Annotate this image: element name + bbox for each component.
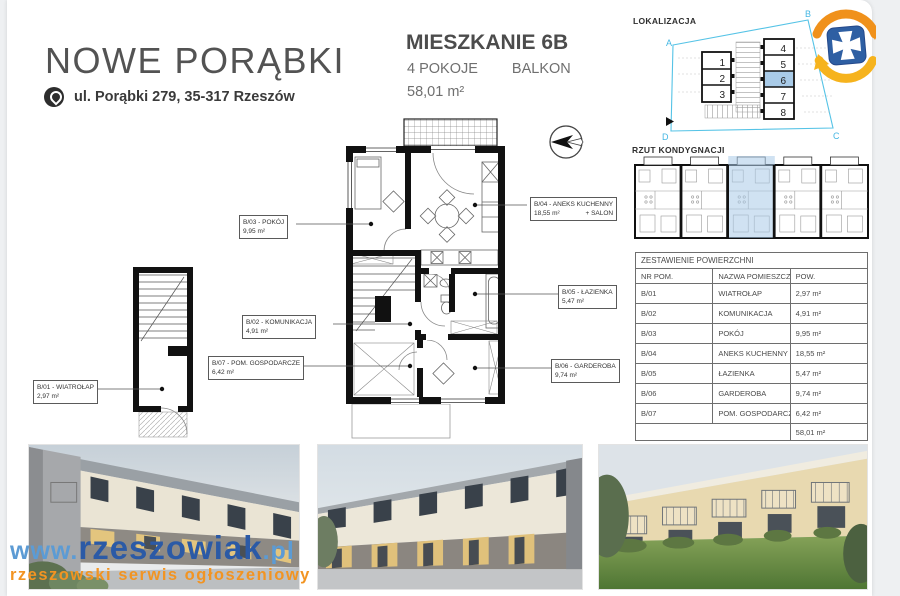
site-unit-6-highlight (765, 72, 793, 87)
label-b06: B/06 - GARDEROBA 9,74 m² (551, 359, 620, 383)
label-b04: B/04 - ANEKS KUCHENNY 18,55 m²+ SALON (530, 197, 617, 221)
ground-floor-plan (133, 267, 193, 437)
site-corner-b: B (805, 9, 811, 19)
col-area: POW. (790, 269, 867, 284)
site-unit-2: 2 (719, 74, 725, 85)
site-corner-a: A (666, 38, 672, 48)
rzeszow-crest-logo (812, 5, 876, 89)
watermark-url: www.rzeszowiak.pl (10, 531, 311, 564)
site-corner-c: C (833, 131, 840, 141)
area-table: ZESTAWIENIE POWIERZCHNI NR POM. NAZWA PO… (635, 252, 868, 441)
label-b03: B/03 - POKÓJ 9,95 m² (239, 215, 288, 239)
table-row: B/07POM. GOSPODARCZE6,42 m² (636, 404, 868, 424)
watermark: www.rzeszowiak.pl rzeszowski serwis ogło… (10, 531, 311, 584)
unit-title: MIESZKANIE 6B (406, 31, 568, 55)
site-unit-7: 7 (780, 92, 786, 103)
unit-subtitle: 4 POKOJE BALKON (407, 61, 571, 77)
entry-stoop (352, 404, 450, 438)
parking-strip-center (736, 42, 760, 112)
table-row: B/02KOMUNIKACJA4,91 m² (636, 304, 868, 324)
project-title: NOWE PORĄBKI (45, 40, 345, 82)
site-unit-4: 4 (780, 44, 786, 55)
label-b01: B/01 - WIATROŁAP 2,97 m² (33, 380, 98, 404)
storey-plan-strip (630, 150, 875, 245)
label-b07: B/07 - POM. GOSPODARCZE 6,42 m² (208, 356, 304, 380)
site-unit-1: 1 (719, 58, 725, 69)
upper-floor-plan (346, 119, 505, 438)
site-unit-5: 5 (780, 60, 786, 71)
label-b02: B/02 - KOMUNIKACJA 4,91 m² (242, 315, 316, 339)
label-b05: B/05 - ŁAZIENKA 5,47 m² (558, 285, 617, 309)
table-row: B/06GARDEROBA9,74 m² (636, 384, 868, 404)
photo-townhouses-front-right (317, 444, 583, 590)
storey-highlight-unit (728, 156, 775, 238)
area-table-title: ZESTAWIENIE POWIERZCHNI (636, 253, 868, 269)
col-name: NAZWA POMIESZCZENIA (713, 269, 790, 284)
site-north-marker (666, 117, 674, 126)
unit-area: 58,01 m² (407, 84, 464, 100)
unit-rooms: 4 POKOJE (407, 61, 478, 77)
balcony (404, 119, 497, 146)
col-nr: NR POM. (636, 269, 713, 284)
flyer-page: NOWE PORĄBKI ul. Porąbki 279, 35-317 Rze… (0, 0, 900, 596)
table-row: B/01WIATROŁAP2,97 m² (636, 284, 868, 304)
table-row: B/05ŁAZIENKA5,47 m² (636, 364, 868, 384)
site-unit-8: 8 (780, 108, 786, 119)
table-row: B/03POKÓJ9,95 m² (636, 324, 868, 344)
site-unit-6: 6 (780, 76, 786, 87)
unit-balcony: BALKON (512, 61, 571, 77)
site-block-left (702, 52, 731, 102)
site-unit-3: 3 (719, 90, 725, 101)
north-arrow-icon (550, 126, 583, 158)
photo-townhouses-garden (598, 444, 868, 590)
site-corner-d: D (662, 132, 669, 142)
table-total: 58,01 m² (790, 424, 867, 441)
table-row: B/04ANEKS KUCHENNY + SALON18,55 m² (636, 344, 868, 364)
watermark-tagline: rzeszowski serwis ogłoszeniowy (10, 567, 311, 584)
table-total-row: 58,01 m² (636, 424, 868, 441)
parking-strip-bottom (705, 105, 760, 118)
